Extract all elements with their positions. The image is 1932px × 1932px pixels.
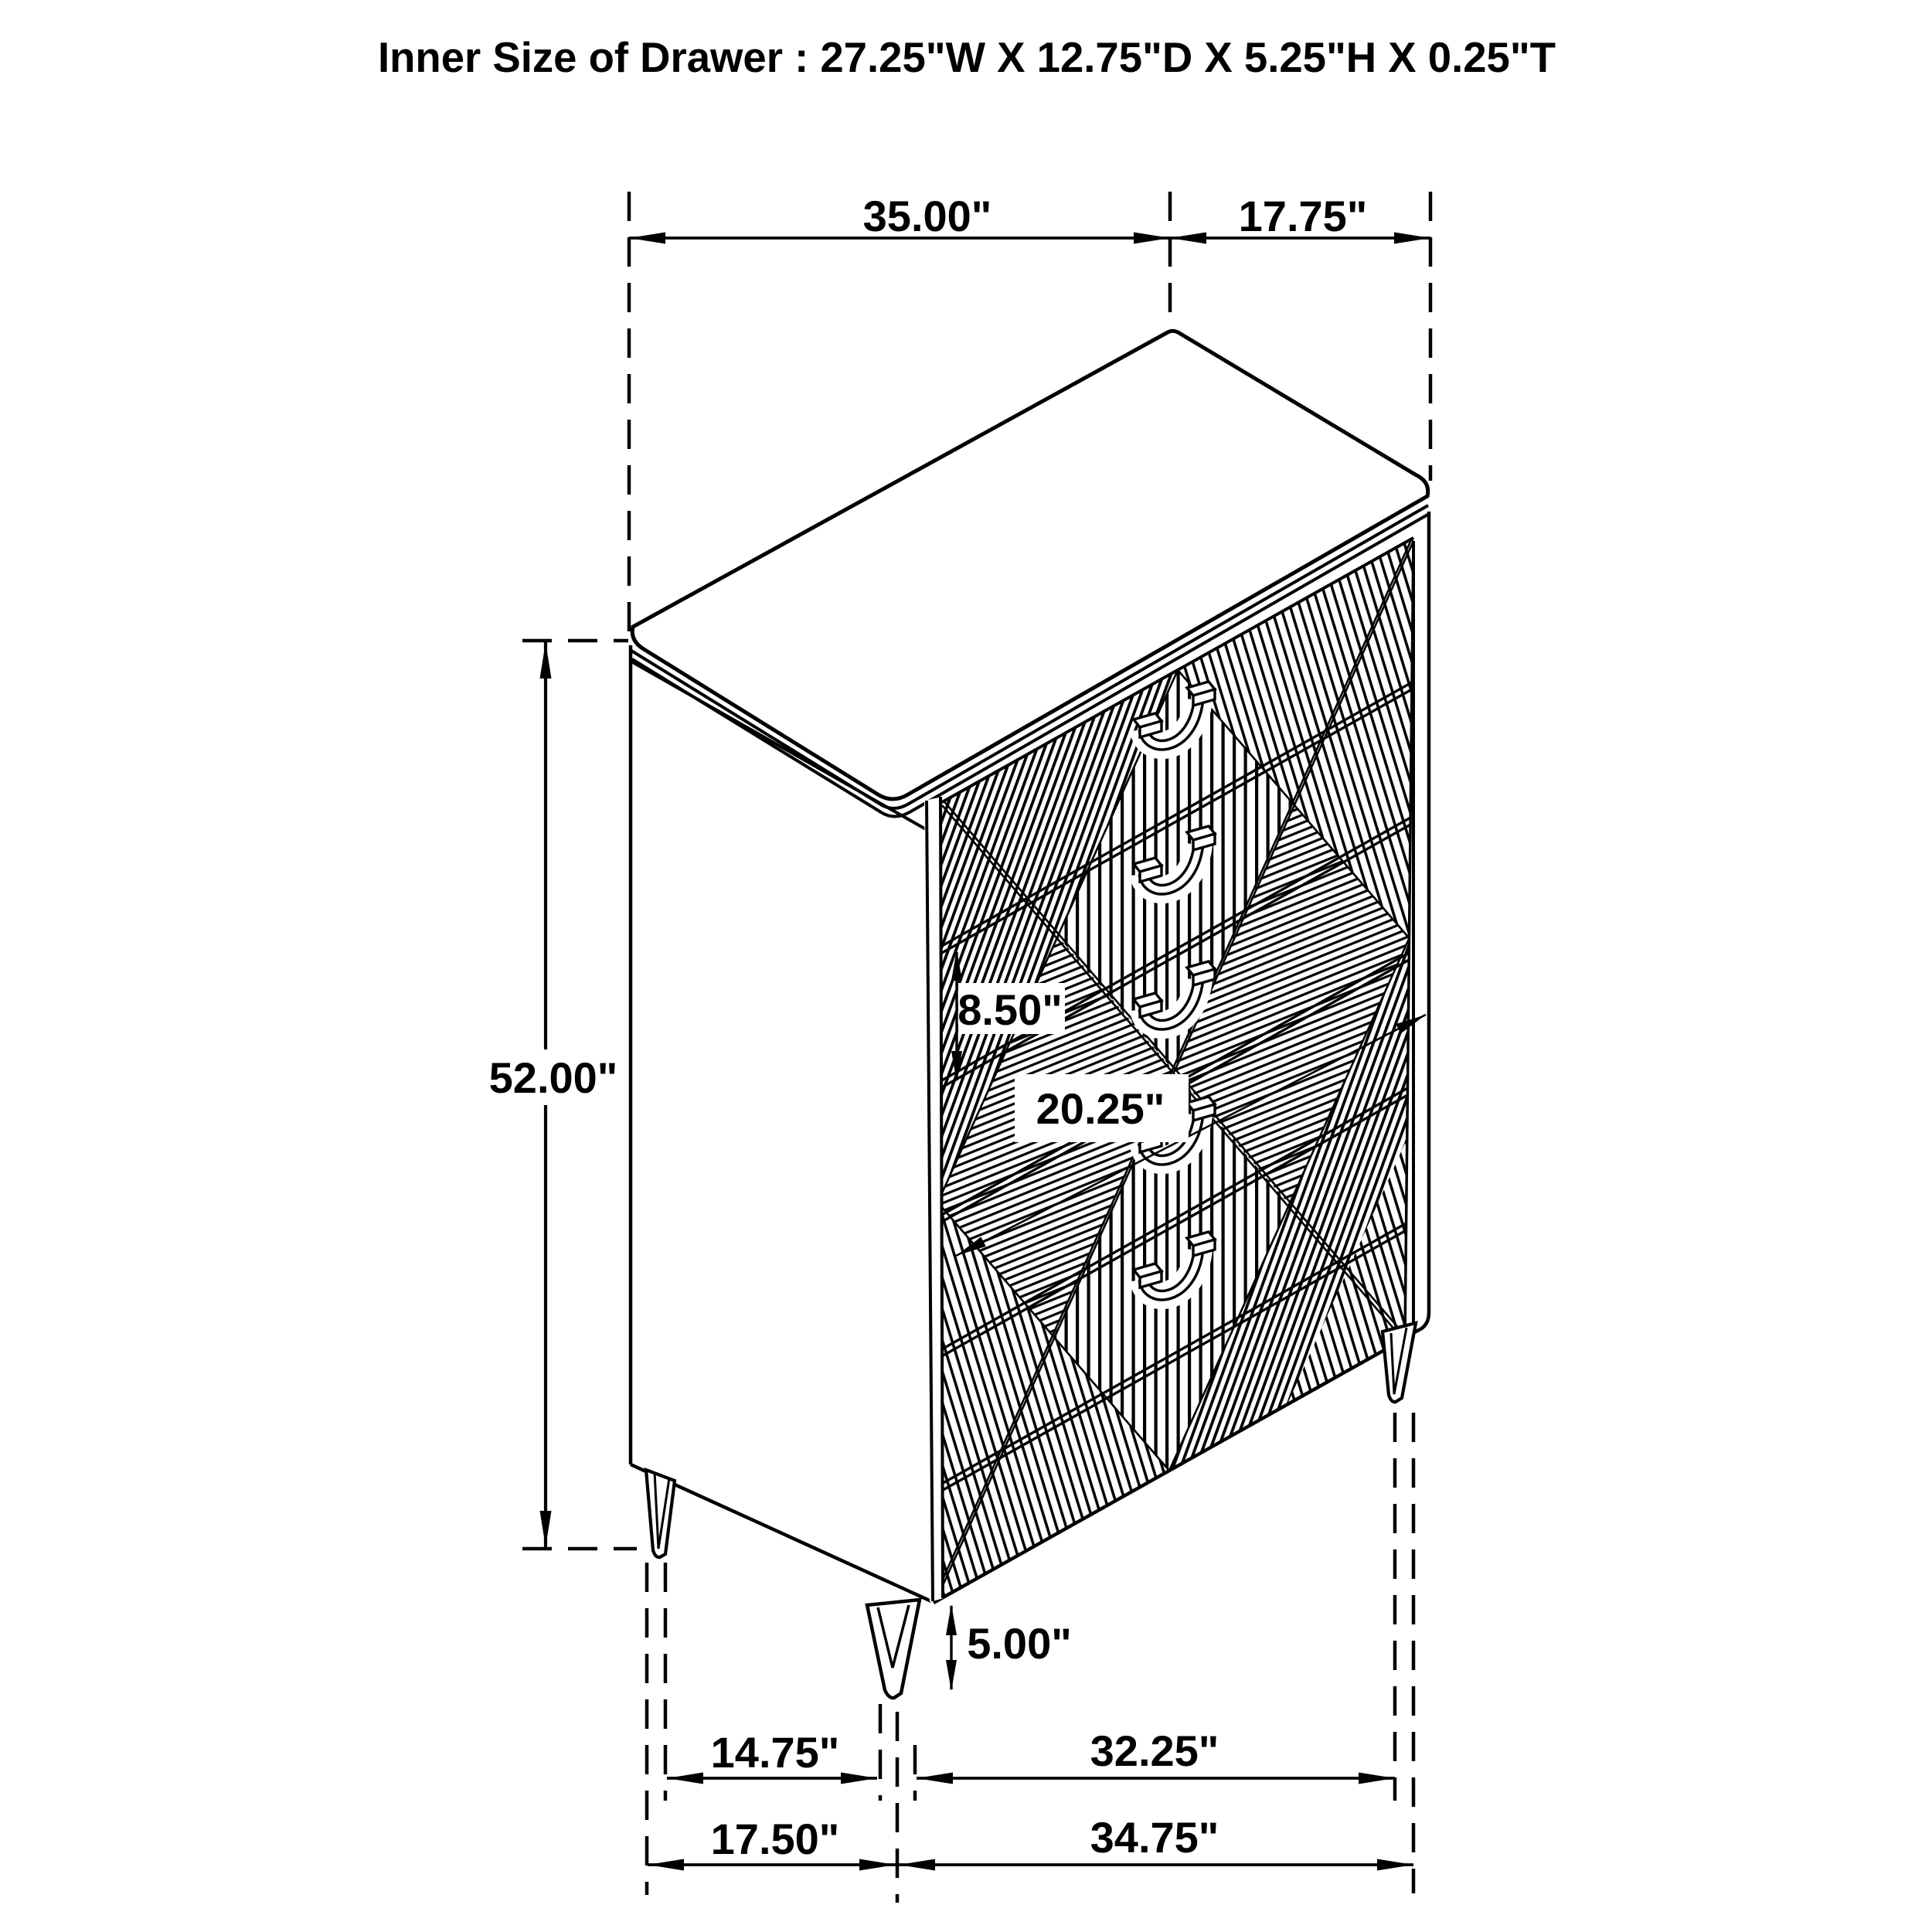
svg-text:17.50": 17.50" — [711, 1815, 840, 1863]
svg-text:32.25": 32.25" — [1090, 1726, 1219, 1775]
svg-text:34.75": 34.75" — [1090, 1813, 1219, 1862]
svg-text:Inner Size of Drawer : 27.25"W: Inner Size of Drawer : 27.25"W X 12.75"D… — [378, 34, 1556, 81]
svg-text:14.75": 14.75" — [711, 1728, 840, 1777]
svg-text:8.50": 8.50" — [957, 985, 1063, 1034]
svg-text:5.00": 5.00" — [967, 1619, 1072, 1668]
svg-text:52.00": 52.00" — [489, 1053, 618, 1102]
svg-text:35.00": 35.00" — [863, 192, 992, 240]
svg-text:17.75": 17.75" — [1239, 192, 1368, 240]
svg-text:20.25": 20.25" — [1036, 1084, 1165, 1133]
